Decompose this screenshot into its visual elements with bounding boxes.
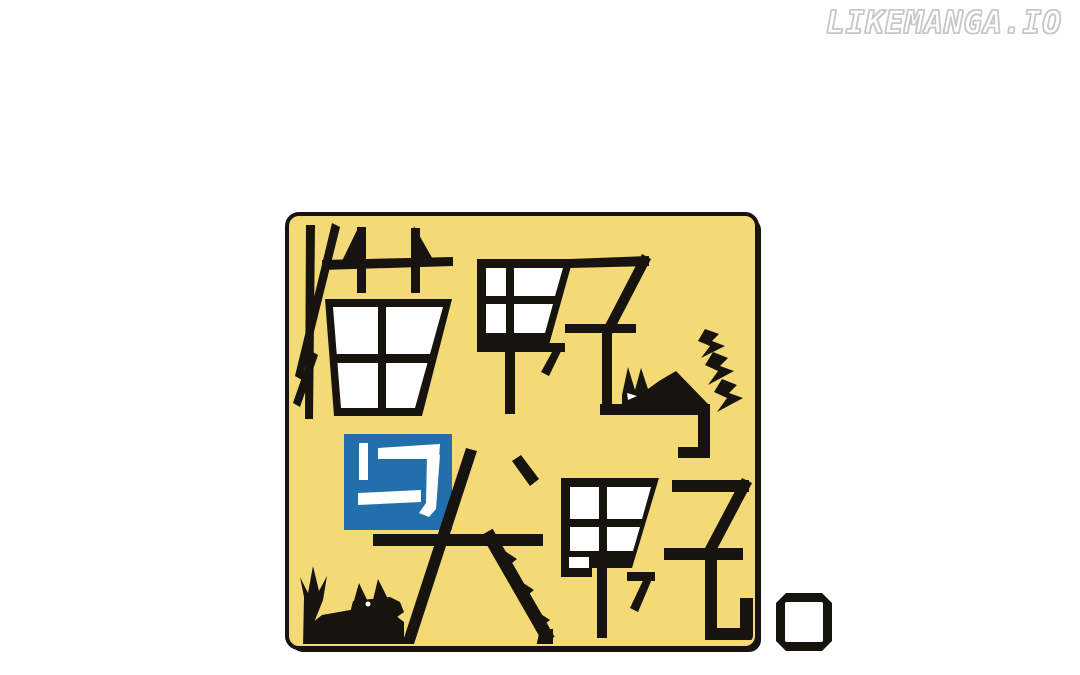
dog-eye — [366, 602, 371, 607]
manga-cover-image — [270, 200, 850, 665]
site-watermark-logo: LIKEMANGA.IO — [826, 5, 1062, 41]
cover-art-svg — [270, 200, 850, 665]
square-period-icon — [776, 593, 832, 651]
kanji-yo-connector — [344, 434, 452, 530]
